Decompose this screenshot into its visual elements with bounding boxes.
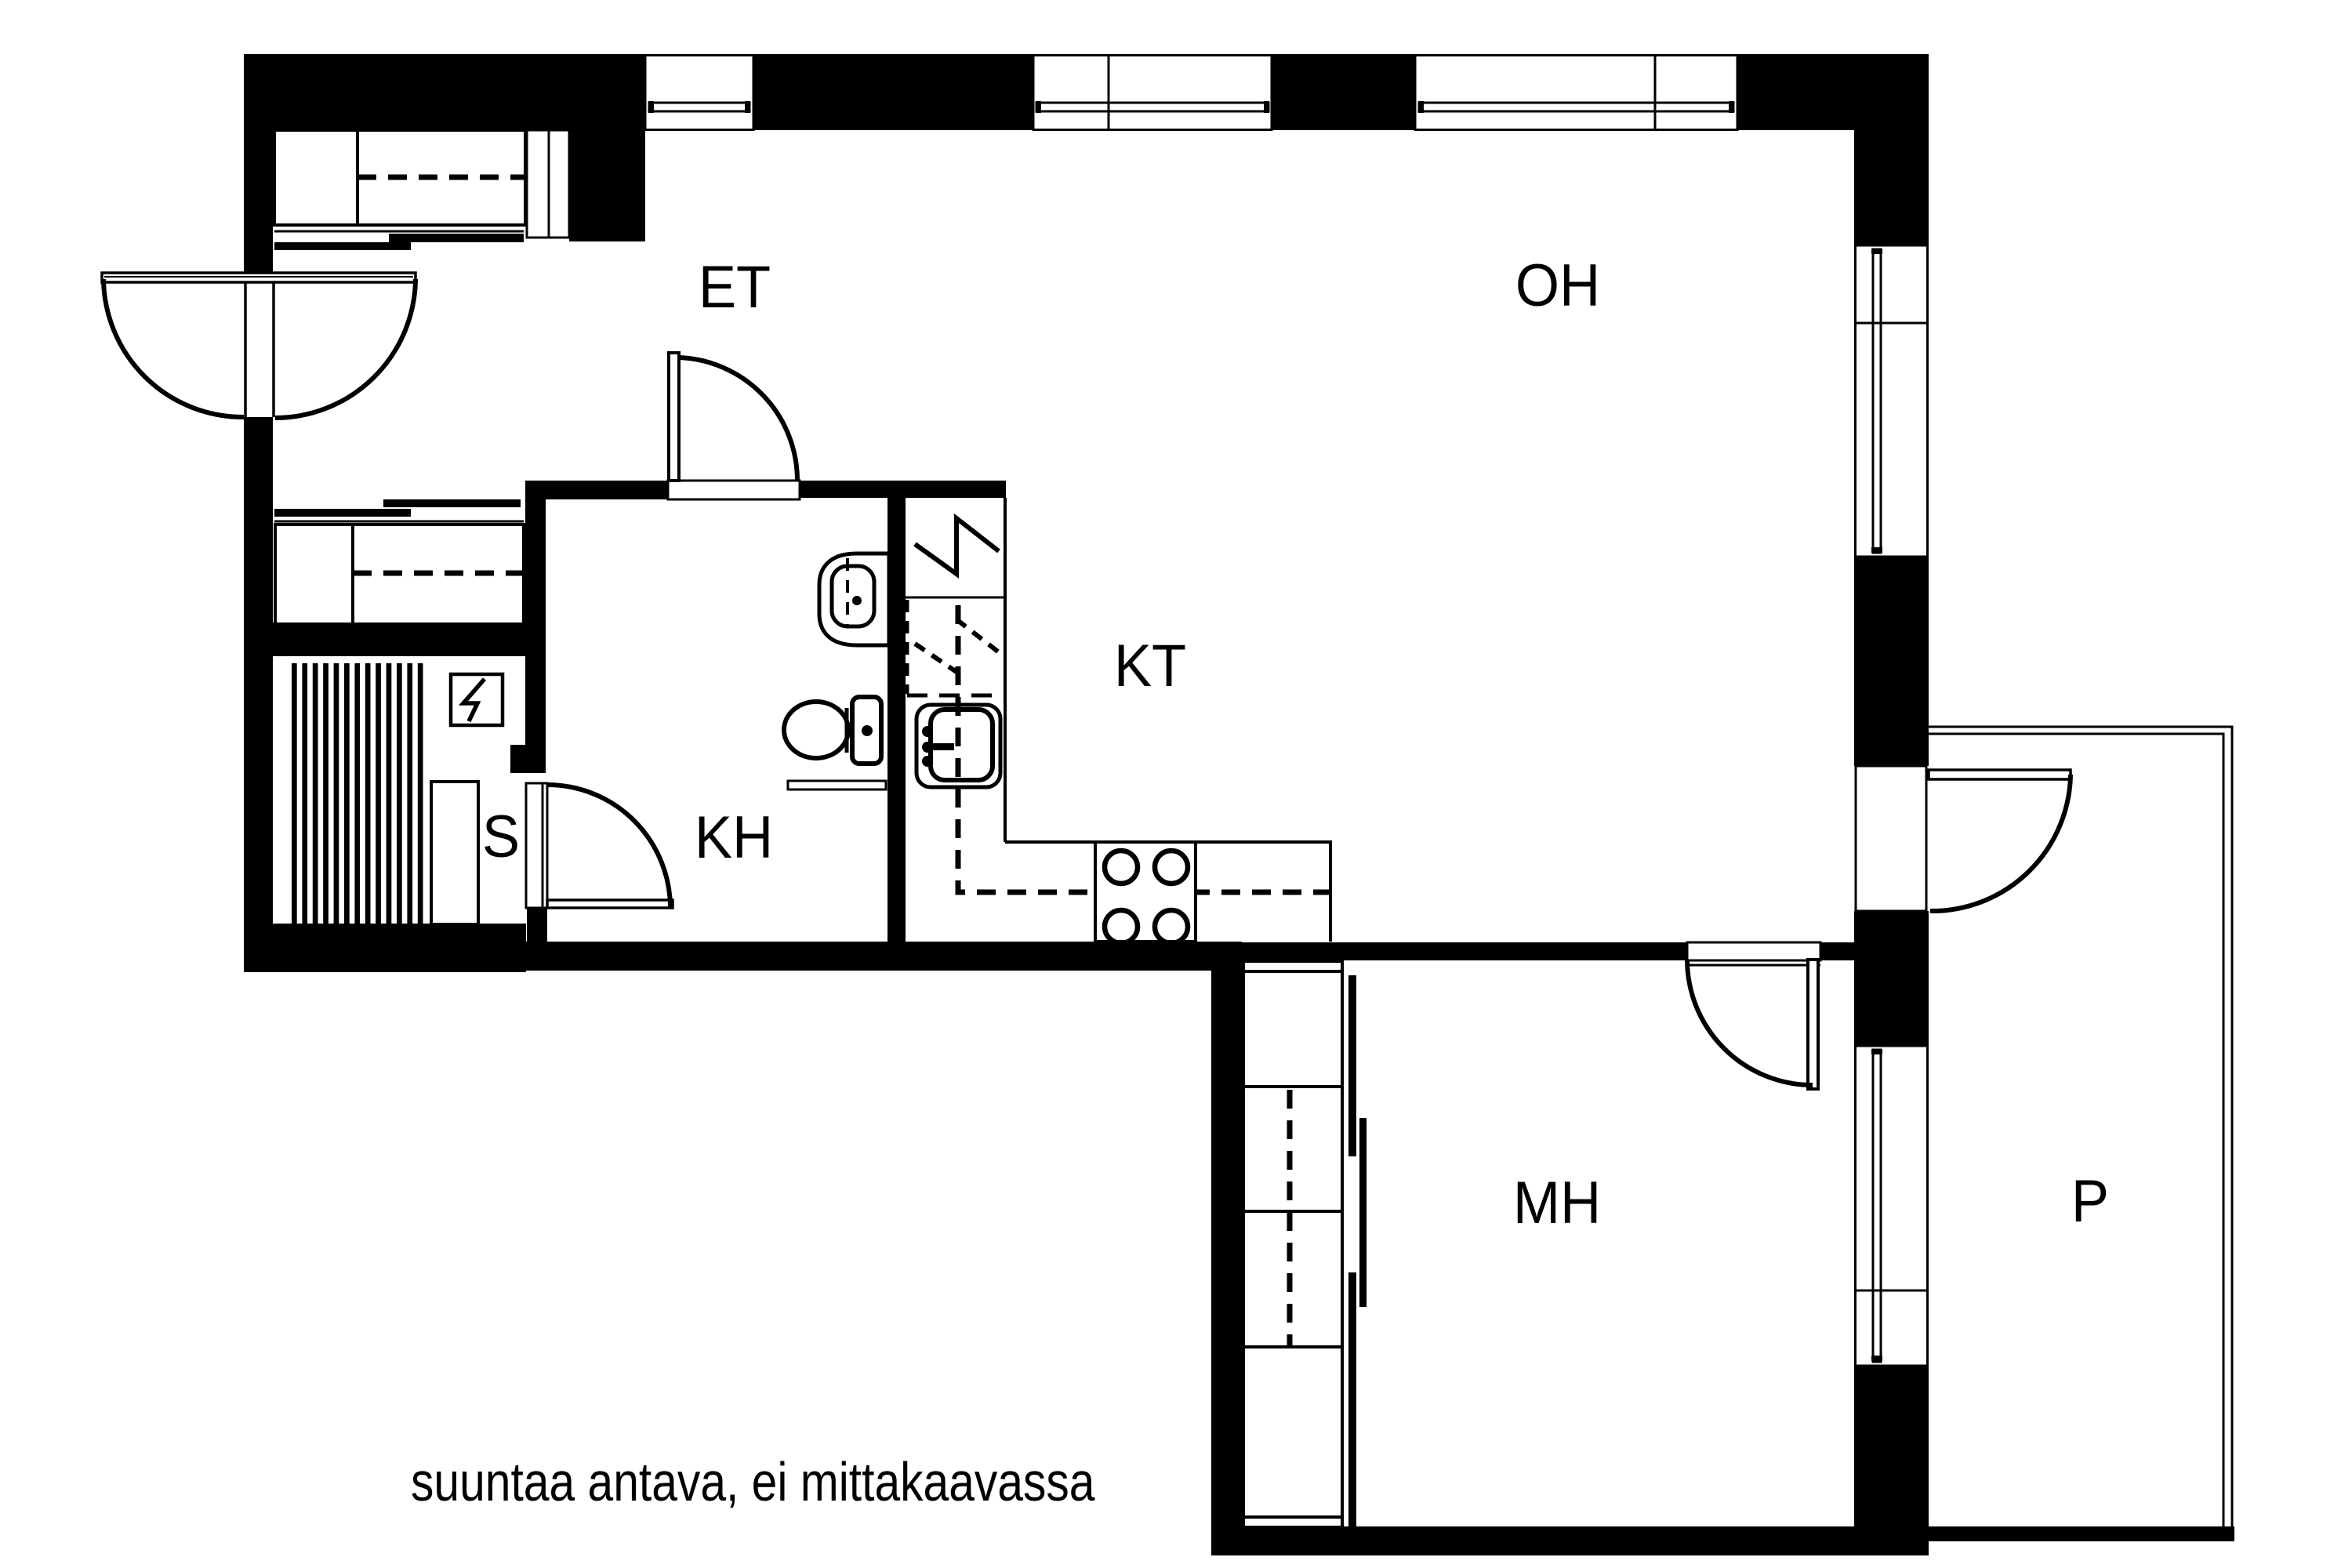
svg-text:OH: OH — [1515, 252, 1600, 318]
svg-text:suuntaa antava, ei mittakaavas: suuntaa antava, ei mittakaavassa — [411, 1450, 1095, 1512]
svg-text:ET: ET — [699, 253, 771, 320]
svg-text:KH: KH — [695, 804, 773, 870]
svg-text:P: P — [2071, 1167, 2109, 1234]
svg-text:KT: KT — [1114, 632, 1186, 699]
svg-text:S: S — [482, 803, 520, 869]
svg-text:MH: MH — [1513, 1169, 1601, 1236]
